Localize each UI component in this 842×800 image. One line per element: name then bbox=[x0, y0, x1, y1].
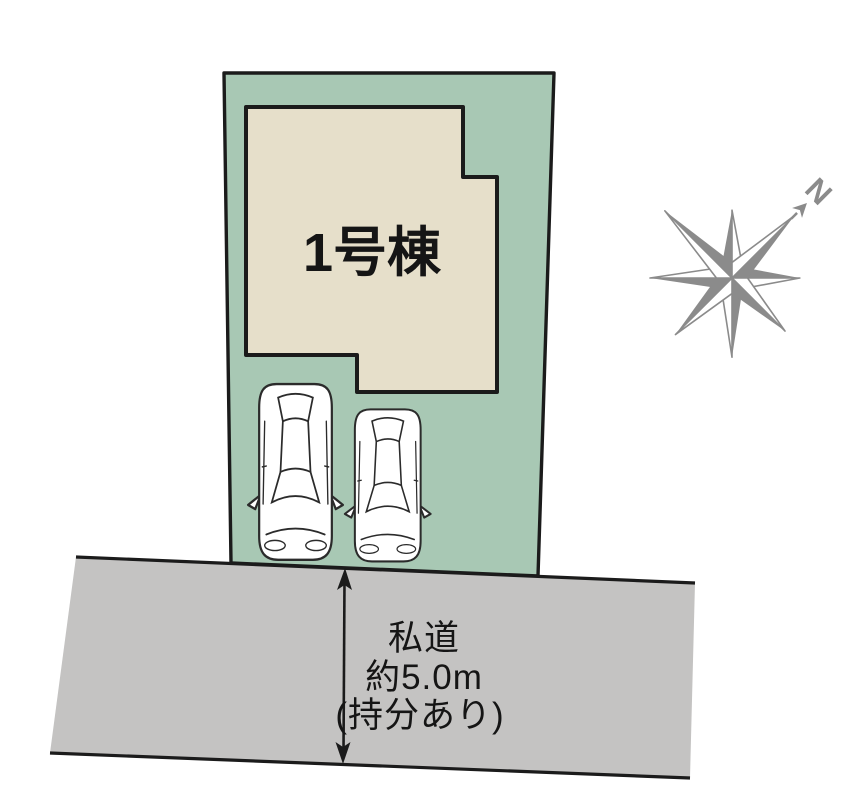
building-label: 1号棟 bbox=[303, 223, 442, 283]
site-plan-svg: 1号棟 私道 約5.0m (持分あり) bbox=[0, 0, 842, 800]
compass-rose-icon: N bbox=[608, 112, 842, 388]
road-label-line1: 私道 bbox=[388, 619, 460, 658]
car-large bbox=[248, 384, 343, 560]
site-plan: 1号棟 私道 約5.0m (持分あり) bbox=[0, 0, 842, 800]
road-label-line3: (持分あり) bbox=[335, 696, 504, 735]
north-arrow-shaft bbox=[791, 213, 797, 219]
car-small bbox=[345, 409, 431, 561]
road-label-line2: 約5.0m bbox=[365, 658, 483, 697]
